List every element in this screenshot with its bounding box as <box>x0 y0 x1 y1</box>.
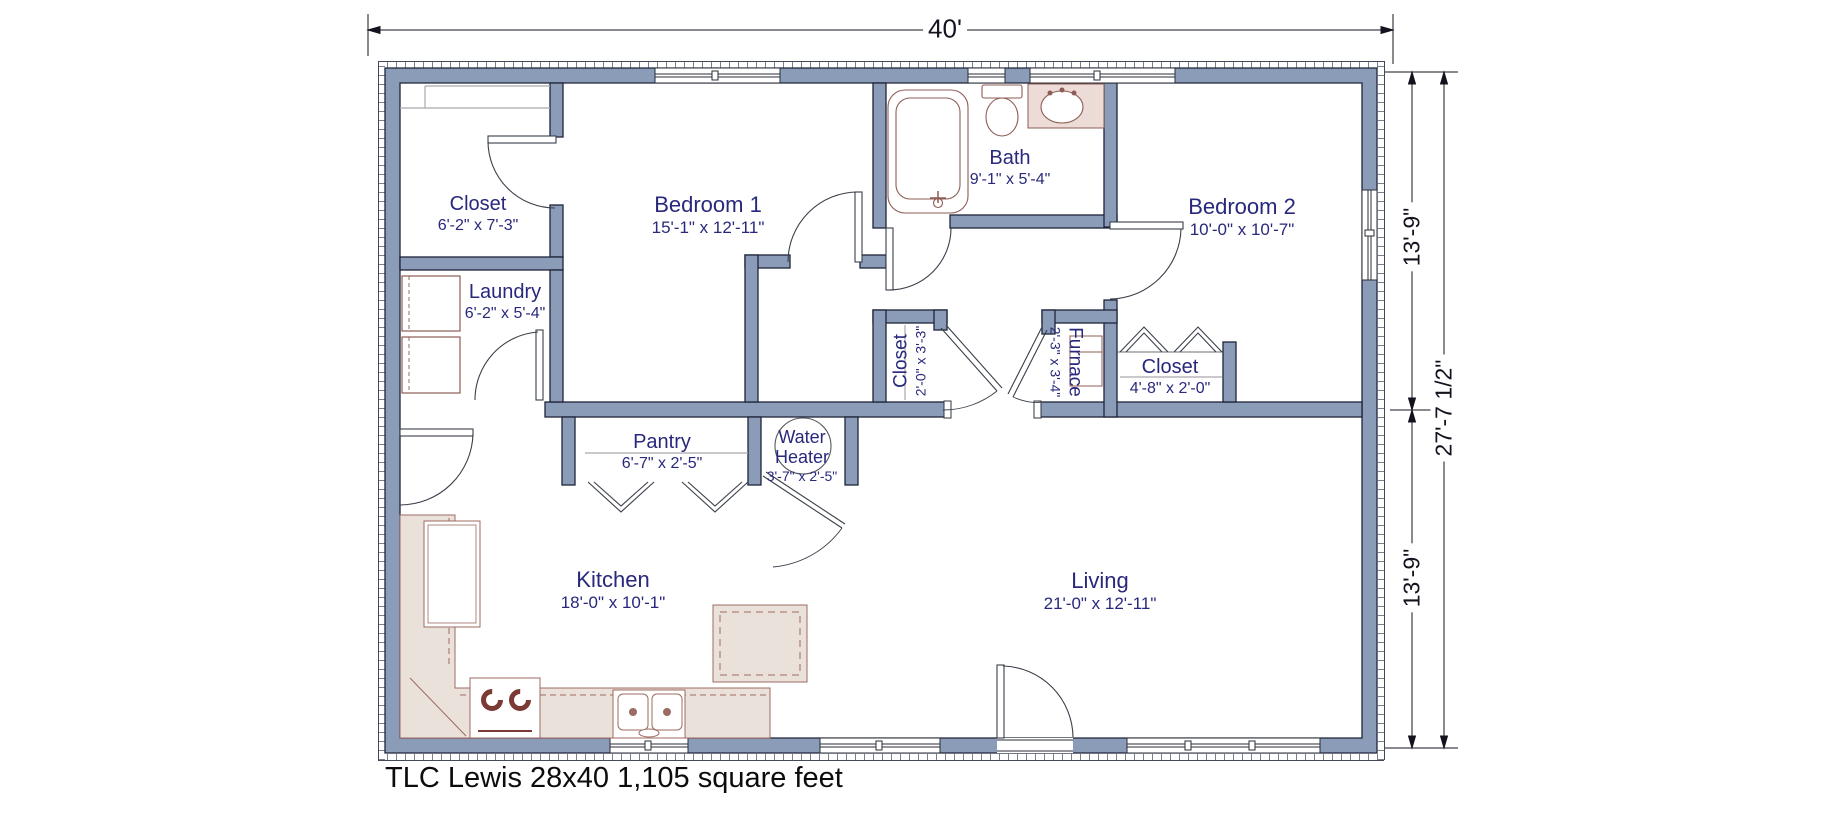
room-label-bath: Bath 9'-1" x 5'-4" <box>970 147 1051 189</box>
washer-dryer-symbols <box>402 276 460 393</box>
dim-label-right-total: 27'-7 1/2" <box>1431 355 1458 462</box>
hall-closet-left-wall <box>873 310 886 402</box>
pantry-left-wall <box>562 417 575 485</box>
middle-wall-left <box>545 402 950 417</box>
room-label-bedroom2: Bedroom 2 10'-0" x 10'-7" <box>1188 194 1296 240</box>
door-bath <box>886 228 951 290</box>
bath-sink-symbol <box>1028 84 1104 128</box>
plan-drawing <box>0 0 1828 831</box>
window-bath-bedroom2 <box>1030 68 1175 83</box>
window-bedroom2-right <box>1362 190 1377 280</box>
room-label-kitchen: Kitchen 18'-0" x 10'-1" <box>561 567 666 613</box>
room-label-bedroom1: Bedroom 1 15'-1" x 12'-11" <box>652 192 765 238</box>
door-bedroom1 <box>788 192 862 262</box>
door-laundry <box>475 330 543 400</box>
room-label-water-heater: Water Heater 3'-7" x 2'-5" <box>767 428 838 484</box>
bifold-closet2 <box>1117 327 1223 352</box>
room-label-furnace: Furnace 2'-3" x 3'-4" <box>1047 327 1086 398</box>
room-label-pantry: Pantry 6'-7" x 2'-5" <box>622 431 703 473</box>
passage-jambs <box>944 401 1041 418</box>
bathtub-symbol <box>888 90 968 213</box>
closet-tl-right-wall-lower <box>550 205 563 257</box>
bifold-pantry <box>588 482 748 512</box>
hall-left-wall <box>745 255 758 402</box>
pantry-right-wall <box>748 417 761 485</box>
closet-tl-shelf <box>400 86 550 108</box>
kitchen-island <box>713 605 807 682</box>
room-label-living: Living 21'-0" x 12'-11" <box>1044 568 1157 614</box>
door-furnace <box>1008 327 1047 402</box>
bath-bottom-wall <box>950 215 1117 228</box>
door-water-heater <box>763 472 845 567</box>
door-bedroom2 <box>1110 222 1183 299</box>
door-kitchen-entry <box>400 429 473 505</box>
closet-tl-right-wall-upper <box>550 83 563 137</box>
window-bedroom1 <box>655 68 780 83</box>
closet2-right-wall <box>1223 342 1236 402</box>
room-label-hall-closet: Closet 2'-0" x 3'-3" <box>891 326 930 397</box>
room-label-closet-tl: Closet 6'-2" x 7'-3" <box>438 193 519 235</box>
front-door-threshold <box>997 738 1073 753</box>
door-front-entry <box>997 665 1073 738</box>
closet-tl-bottom-wall <box>400 257 563 270</box>
dim-label-right-lower: 13'-9" <box>1399 544 1426 613</box>
laundry-right-wall <box>550 270 563 402</box>
middle-wall-right <box>1040 402 1362 417</box>
dim-label-right-upper: 13'-9" <box>1399 203 1426 272</box>
hall-closet-right-post <box>934 310 947 330</box>
floor-plan-page: Closet 6'-2" x 7'-3" Bedroom 1 15'-1" x … <box>0 0 1828 831</box>
water-heater-right-wall <box>845 417 858 485</box>
refrigerator-symbol <box>424 521 480 627</box>
window-bath-small <box>968 68 1005 83</box>
bath-left-wall <box>873 83 886 228</box>
dim-label-width-40ft: 40' <box>923 14 967 45</box>
plan-title: TLC Lewis 28x40 1,105 square feet <box>385 762 843 795</box>
window-living <box>1127 738 1320 753</box>
toilet-symbol <box>982 85 1022 136</box>
walls <box>385 68 1377 753</box>
room-label-closet2: Closet 4'-8" x 2'-0" <box>1130 356 1211 398</box>
window-kitchen <box>610 738 688 753</box>
door-hall-closet <box>941 325 1002 410</box>
window-kitchen-living <box>820 738 940 753</box>
kitchen-sink-symbol <box>613 690 685 738</box>
bedroom1-bottom-wall-b <box>860 255 886 268</box>
bath-right-wall <box>1104 83 1117 227</box>
room-label-laundry: Laundry 6'-2" x 5'-4" <box>465 281 546 323</box>
stove-symbol <box>470 678 540 738</box>
